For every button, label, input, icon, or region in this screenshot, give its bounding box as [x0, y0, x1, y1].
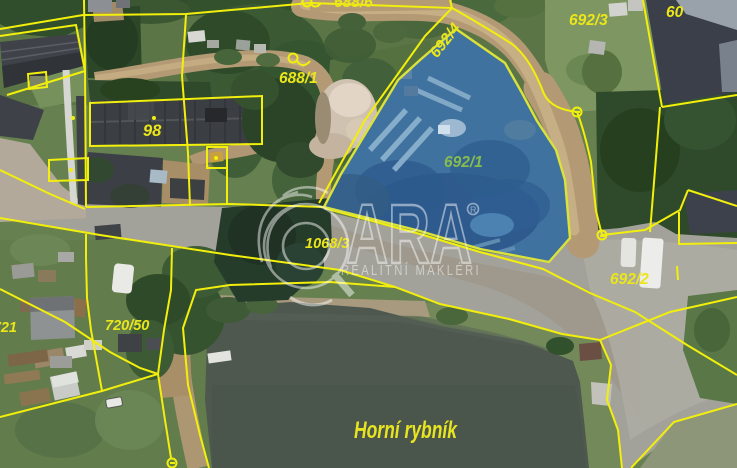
svg-text:REALITNÍ MAKLÉŘI: REALITNÍ MAKLÉŘI: [341, 262, 481, 279]
svg-text:692/1: 692/1: [444, 154, 483, 171]
svg-text:721: 721: [0, 320, 17, 336]
svg-text:720/50: 720/50: [105, 318, 149, 334]
svg-text:692/2: 692/2: [610, 271, 649, 288]
svg-text:692/3: 692/3: [569, 12, 608, 29]
svg-text:R: R: [470, 205, 477, 215]
svg-text:98: 98: [143, 122, 162, 140]
svg-text:Horní rybník: Horní rybník: [354, 417, 458, 444]
svg-text:688/6: 688/6: [334, 0, 373, 11]
svg-text:60: 60: [666, 4, 684, 21]
svg-text:688/1: 688/1: [279, 70, 318, 87]
